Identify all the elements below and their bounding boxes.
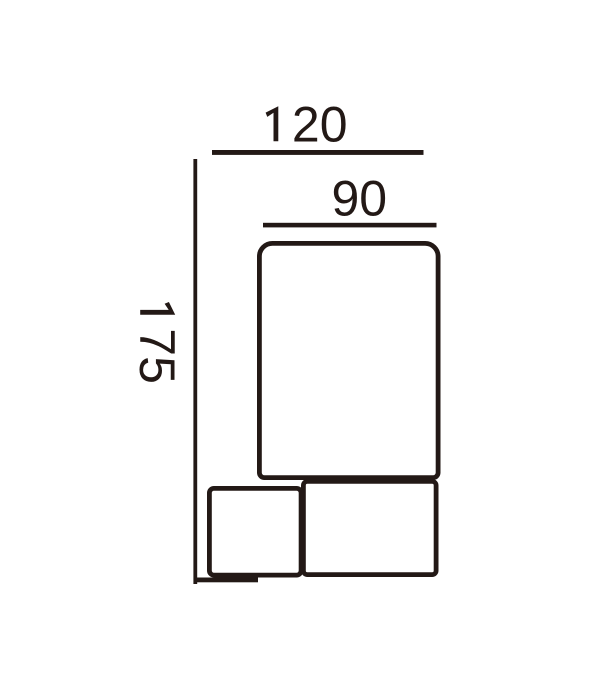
svg-text:75: 75 — [129, 328, 185, 384]
svg-text:20: 20 — [292, 96, 348, 152]
svg-text:90: 90 — [331, 171, 387, 227]
